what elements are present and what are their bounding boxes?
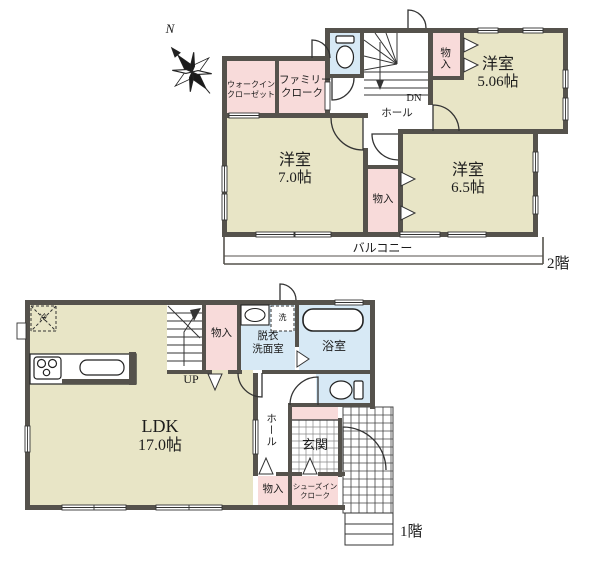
walk-in-closet-line1: ウォークイン [227, 80, 275, 90]
washroom-sink-icon [241, 305, 269, 325]
room-label-yoshitsu-70: 洋室 7.0帖 [227, 152, 363, 188]
room-label-walk-in-closet: ウォークイン クローゼット [227, 80, 275, 100]
compass-north-label: N [160, 22, 180, 37]
toilet-1f-icon [330, 381, 363, 399]
family-cloak-line2: クローク [279, 87, 325, 100]
room-label-hall-2f: ホール [370, 108, 424, 120]
stairs-dn-label: DN [398, 93, 430, 105]
room-label-yoshitsu-506: 洋室 5.06帖 [433, 56, 563, 92]
toilet-2f-icon [336, 36, 354, 68]
floor1-tag: 1階 [400, 524, 444, 541]
yoshitsu-70-name: 洋室 [227, 152, 363, 170]
compass-icon [154, 33, 227, 108]
room-label-storage-hall: 物入 [256, 484, 290, 496]
fridge-label: 冷 [33, 313, 54, 323]
bathtub-icon [303, 309, 363, 331]
washer-label: 洗 [272, 313, 293, 323]
balcony-label: バルコニー [222, 242, 543, 256]
room-label-storage-mid-2f: 物入 [368, 194, 398, 206]
kitchen-counter-icon [30, 352, 136, 385]
stairs-2f-icon [364, 33, 428, 95]
room-label-family-cloak: ファミリー クローク [279, 74, 325, 100]
ldk-name: LDK [60, 416, 260, 437]
room-label-shoes-closet: シューズイン クローク [292, 482, 338, 500]
ldk-size: 17.0帖 [60, 437, 260, 455]
shoes-closet-line2: クローク [292, 491, 338, 500]
room-label-bath: 浴室 [301, 340, 367, 354]
washroom-line1: 脱衣 [239, 330, 297, 343]
room-label-entrance: 玄関 [292, 438, 338, 453]
stairs-up-label: UP [174, 373, 208, 387]
floorplan-page: N ウォークイン クローゼット ファミリー クローク 物入 ホール DN 洋室 … [0, 0, 600, 564]
entrance-steps [345, 513, 393, 545]
room-label-ldk: LDK 17.0帖 [60, 416, 260, 455]
yoshitsu-70-size: 7.0帖 [227, 170, 363, 187]
yoshitsu-65-name: 洋室 [403, 162, 533, 180]
floor2-tag: 2階 [547, 256, 587, 273]
washroom-line2: 洗面室 [239, 343, 297, 356]
family-cloak-line1: ファミリー [279, 74, 325, 87]
walk-in-closet-line2: クローゼット [227, 90, 275, 100]
room-label-hall-1f: ホール [264, 404, 276, 456]
yoshitsu-506-name: 洋室 [433, 56, 563, 74]
room-label-yoshitsu-65: 洋室 6.5帖 [403, 162, 533, 198]
room-label-washroom: 脱衣 洗面室 [239, 330, 297, 356]
room-label-storage-stairs: 物入 [206, 328, 237, 340]
shoes-closet-line1: シューズイン [292, 482, 338, 491]
yoshitsu-506-size: 5.06帖 [433, 74, 563, 91]
yoshitsu-65-size: 6.5帖 [403, 180, 533, 197]
